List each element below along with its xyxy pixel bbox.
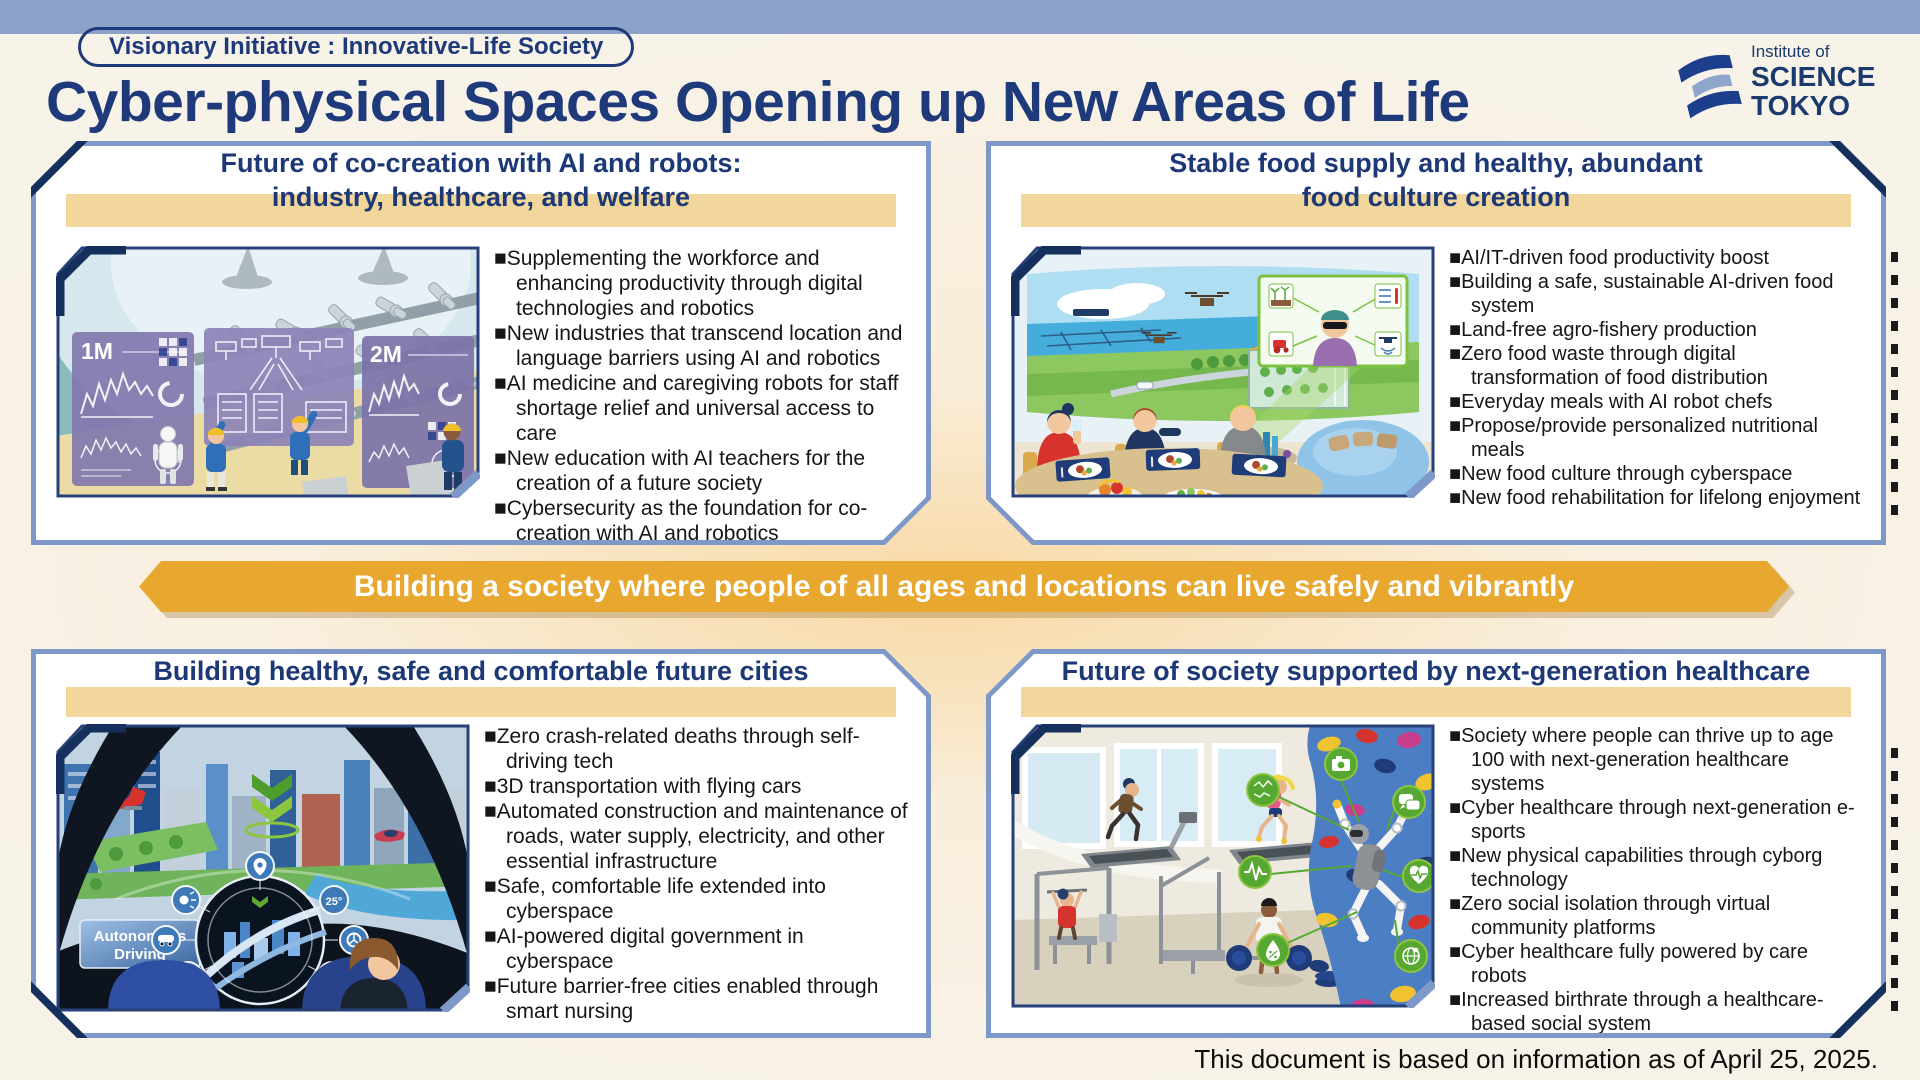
panel-food-bullets: AI/IT-driven food productivity boost Bui…	[1449, 246, 1867, 510]
bullet-item: New food rehabilitation for lifelong enj…	[1449, 486, 1867, 510]
center-banner-text: Building a society where people of all a…	[354, 570, 1574, 604]
temperature-readout: 25°	[326, 896, 343, 908]
panel-future-cities: Building healthy, safe and comfortable f…	[31, 649, 931, 1038]
dining-illustration	[1011, 246, 1435, 498]
bullet-item: AI-powered digital government in cybersp…	[484, 924, 912, 974]
panel-food: Stable food supply and healthy, abundant…	[986, 141, 1886, 545]
panel-title: Building healthy, safe and comfortable f…	[36, 654, 926, 688]
page-title: Cyber-physical Spaces Opening up New Are…	[46, 72, 1470, 132]
autonomous-driving-badge: Autonomous Driving	[80, 920, 200, 968]
panel-ai-robots: Future of co-creation with AI and robots…	[31, 141, 931, 545]
panel-future-cities-bullets: Zero crash-related deaths through self-d…	[484, 724, 912, 1024]
bullet-item: Future barrier-free cities enabled throu…	[484, 974, 912, 1024]
bullet-item: Cyber healthcare fully powered by care r…	[1449, 940, 1867, 988]
bullet-item: Increased birthrate through a healthcare…	[1449, 988, 1867, 1036]
science-tokyo-logo-text: Institute of SCIENCE TOKYO	[1751, 38, 1875, 120]
bullet-item: Propose/provide personalized nutritional…	[1449, 414, 1867, 462]
panel-ai-robots-bullets: Supplementing the workforce and enhancin…	[494, 246, 912, 546]
logo-line-science: SCIENCE	[1751, 62, 1875, 91]
bullet-item: New physical capabilities through cyborg…	[1449, 844, 1867, 892]
bullet-item: Building a safe, sustainable AI-driven f…	[1449, 270, 1867, 318]
gold-highlight-bar	[1021, 687, 1851, 717]
logo-line-institute-of: Institute of	[1751, 42, 1875, 62]
page-edge-dash-marks	[1891, 748, 1898, 1014]
farmer-screen	[1259, 276, 1407, 366]
screen-label-2m: 2M	[370, 341, 402, 367]
bullet-item: AI/IT-driven food productivity boost	[1449, 246, 1867, 270]
bullet-item: Land-free agro-fishery production	[1449, 318, 1867, 342]
gold-highlight-bar	[66, 687, 896, 717]
dashboard-flowchart	[204, 328, 354, 446]
panel-title: Future of society supported by next-gene…	[991, 654, 1881, 688]
initiative-badge: Visionary Initiative : Innovative-Life S…	[78, 27, 634, 67]
infographic-page: Visionary Initiative : Innovative-Life S…	[0, 0, 1920, 1080]
screen-label-1m: 1M	[81, 338, 113, 364]
panel-ai-robots-header: Future of co-creation with AI and robots…	[36, 146, 926, 242]
panel-food-header: Stable food supply and healthy, abundant…	[991, 146, 1881, 242]
panel-title: Stable food supply and healthy, abundant	[991, 146, 1881, 180]
panel-title: food culture creation	[991, 180, 1881, 214]
initiative-badge-label: Visionary Initiative : Innovative-Life S…	[109, 33, 603, 61]
bullet-item: Zero food waste through digital transfor…	[1449, 342, 1867, 390]
panel-future-cities-header: Building healthy, safe and comfortable f…	[36, 654, 926, 720]
center-banner: Building a society where people of all a…	[139, 561, 1789, 612]
bullet-item: New education with AI teachers for the c…	[494, 446, 912, 496]
bullet-item: Automated construction and maintenance o…	[484, 799, 912, 874]
panel-healthcare-header: Future of society supported by next-gene…	[991, 654, 1881, 720]
bullet-item: Society where people can thrive up to ag…	[1449, 724, 1867, 796]
ship	[1073, 309, 1109, 316]
bullet-item: Cyber healthcare through next-generation…	[1449, 796, 1867, 844]
bullet-item: New food culture through cyberspace	[1449, 462, 1867, 486]
bullet-item: New industries that transcend location a…	[494, 321, 912, 371]
factory-illustration: 1M	[56, 246, 480, 498]
panel-title: industry, healthcare, and welfare	[36, 180, 926, 214]
page-edge-dash-marks	[1891, 252, 1898, 518]
bullet-item: Everyday meals with AI robot chefs	[1449, 390, 1867, 414]
bullet-item: Zero social isolation through virtual co…	[1449, 892, 1867, 940]
footer-note: This document is based on information as…	[1194, 1044, 1878, 1075]
autonomous-cockpit-illustration: Autonomous Driving	[56, 724, 470, 1012]
bullet-item: AI medicine and caregiving robots for st…	[494, 371, 912, 446]
panel-healthcare: Future of society supported by next-gene…	[986, 649, 1886, 1038]
bullet-item: Safe, comfortable life extended into cyb…	[484, 874, 912, 924]
science-tokyo-logo: Institute of SCIENCE TOKYO	[1676, 38, 1875, 128]
logo-line-tokyo: TOKYO	[1751, 91, 1875, 120]
bullet-item: 3D transportation with flying cars	[484, 774, 912, 799]
bullet-item: Cybersecurity as the foundation for co-c…	[494, 496, 912, 546]
panel-title: Future of co-creation with AI and robots…	[36, 146, 926, 180]
bullet-item: Supplementing the workforce and enhancin…	[494, 246, 912, 321]
gym-windows	[1025, 746, 1279, 846]
panel-healthcare-bullets: Society where people can thrive up to ag…	[1449, 724, 1867, 1036]
bullet-item: Zero crash-related deaths through self-d…	[484, 724, 912, 774]
gym-illustration	[1011, 724, 1435, 1008]
science-tokyo-logo-mark	[1676, 38, 1742, 128]
